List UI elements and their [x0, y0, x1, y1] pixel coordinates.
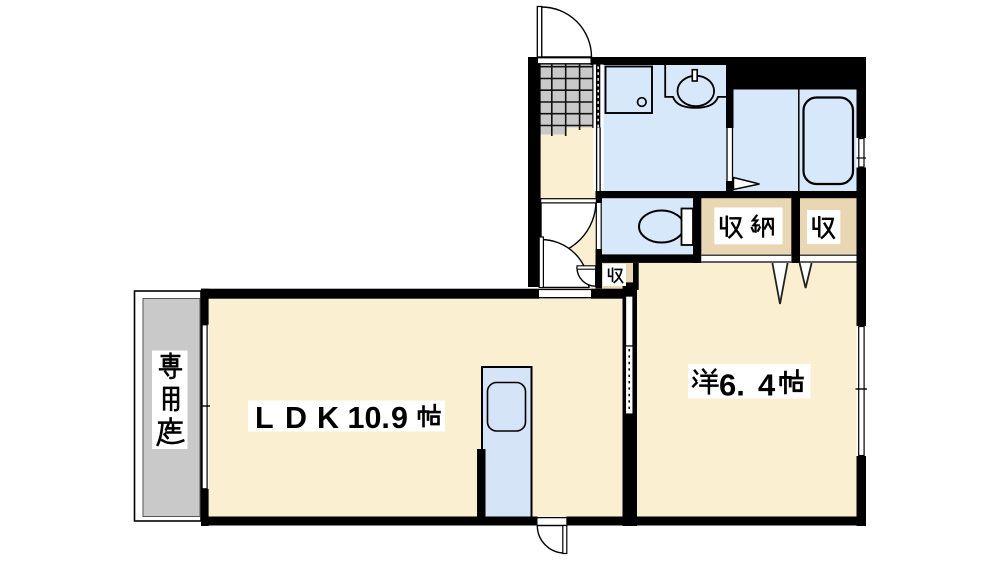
svg-text:D: D: [285, 401, 307, 435]
svg-text:L: L: [255, 401, 274, 435]
svg-text:K: K: [317, 401, 339, 435]
svg-text:4: 4: [758, 368, 776, 403]
svg-text:9: 9: [391, 401, 408, 435]
svg-text:10.: 10.: [348, 401, 390, 435]
svg-text:6.: 6.: [719, 368, 745, 403]
